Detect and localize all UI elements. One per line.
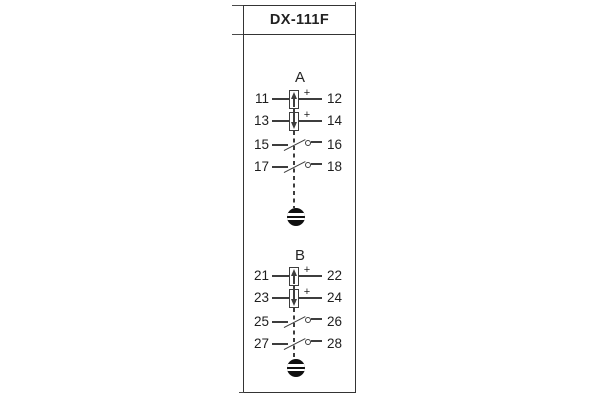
terminal-number-17: 17 [239, 159, 269, 175]
terminal-number-22: 22 [327, 268, 357, 284]
terminal-number-25: 25 [239, 314, 269, 330]
polarity-plus-label: + [300, 265, 314, 275]
bottom-edge-overhang-line [239, 392, 244, 393]
arrow-down-head [291, 299, 297, 306]
polarity-plus-label: + [300, 110, 314, 120]
model-label: DX-111F [270, 12, 329, 28]
polarity-plus-label: + [300, 287, 314, 297]
terminal-number-11: 11 [239, 91, 269, 107]
relay-panel-outline [243, 5, 356, 393]
arrow-up-head [291, 92, 297, 99]
lead-line [311, 340, 323, 341]
terminal-number-21: 21 [239, 268, 269, 284]
lead-line [311, 163, 323, 164]
screw-slot [287, 216, 305, 218]
terminal-number-13: 13 [239, 113, 269, 129]
lead-line [272, 275, 289, 276]
terminal-number-16: 16 [327, 137, 357, 153]
lead-line [272, 297, 289, 298]
terminal-number-12: 12 [327, 91, 357, 107]
lead-line [272, 166, 288, 167]
lead-line [299, 275, 322, 276]
group-a-label: A [285, 70, 315, 86]
lead-line [272, 98, 289, 99]
reset-screw-icon [287, 208, 305, 226]
coil-symbol-up-icon [289, 267, 299, 286]
terminal-number-23: 23 [239, 290, 269, 306]
panel-header: DX-111F [243, 5, 356, 34]
coil-symbol-up-icon [289, 90, 299, 109]
reset-screw-icon [287, 359, 305, 377]
lead-line [299, 120, 322, 121]
arrow-up-head [291, 269, 297, 276]
terminal-number-28: 28 [327, 336, 357, 352]
lead-line [272, 343, 288, 344]
lead-line [299, 297, 322, 298]
top-edge-overhang-line [232, 5, 243, 6]
terminal-number-27: 27 [239, 336, 269, 352]
coil-symbol-down-icon [289, 112, 299, 131]
arrow-down-head [291, 122, 297, 129]
lead-line [272, 144, 288, 145]
divider-overhang-line [232, 34, 243, 35]
mechanical-linkage-dashed-line [293, 131, 294, 209]
diagram-canvas: DX-111F A 11 + 12 13 + 14 15 16 17 [0, 0, 600, 400]
group-b-label: B [285, 248, 315, 264]
screw-slot [287, 367, 305, 369]
lead-line [311, 318, 323, 319]
lead-line [299, 98, 322, 99]
terminal-number-24: 24 [327, 290, 357, 306]
terminal-number-15: 15 [239, 137, 269, 153]
coil-symbol-down-icon [289, 289, 299, 308]
lead-line [272, 321, 288, 322]
terminal-number-14: 14 [327, 113, 357, 129]
lead-line [272, 120, 289, 121]
terminal-number-26: 26 [327, 314, 357, 330]
terminal-number-18: 18 [327, 159, 357, 175]
header-divider-line [243, 34, 356, 36]
polarity-plus-label: + [300, 88, 314, 98]
mechanical-linkage-dashed-line [293, 308, 294, 359]
lead-line [311, 141, 323, 142]
